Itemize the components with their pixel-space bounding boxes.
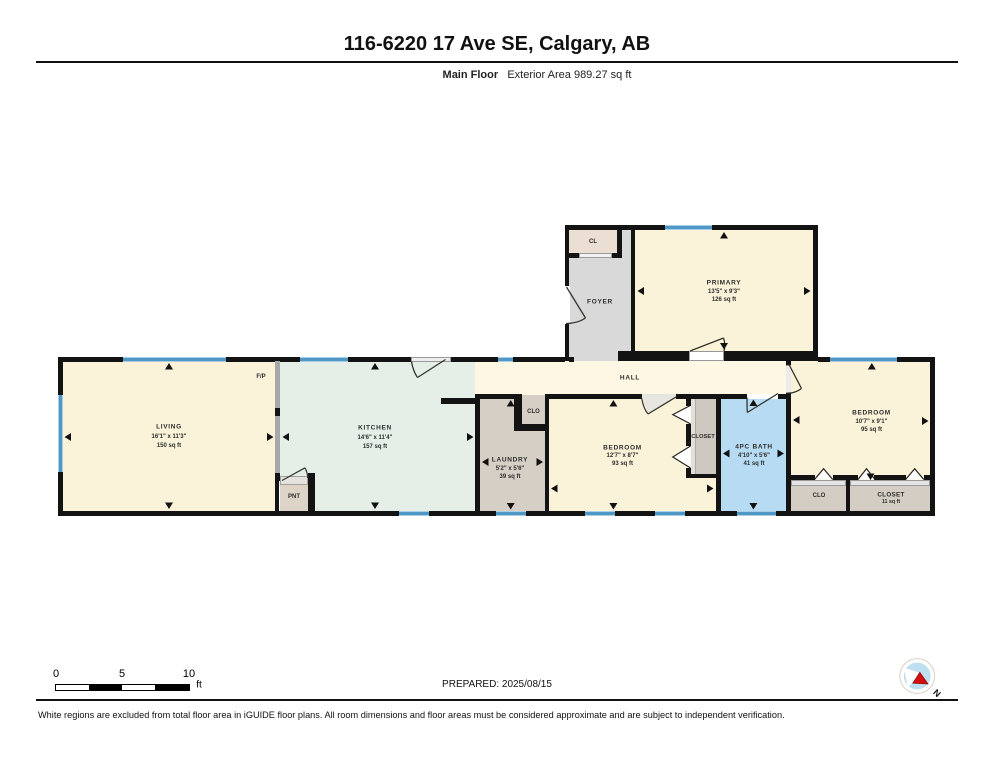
svg-text:N: N xyxy=(931,687,943,699)
